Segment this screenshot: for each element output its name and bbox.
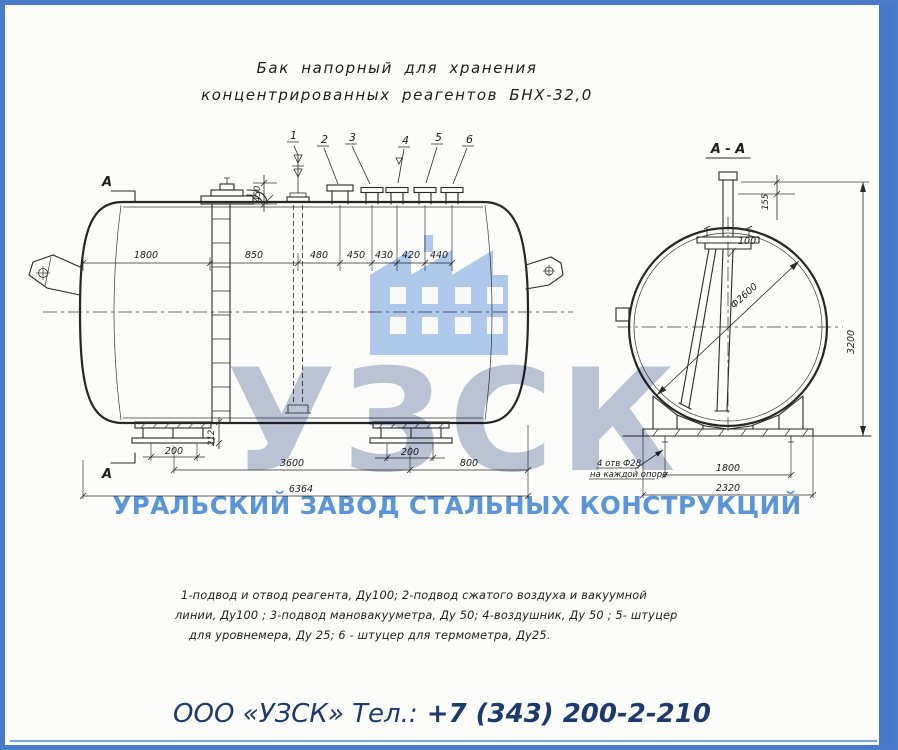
dim-450: 450	[347, 250, 365, 261]
lifting-lug-right	[526, 257, 563, 289]
callout-5: 5	[435, 131, 442, 144]
dim-span: 3600	[280, 458, 304, 469]
shell-circle	[616, 217, 843, 435]
note-line-3: для уровнемера, Ду 25; 6 - штуцер для те…	[175, 626, 750, 646]
dim-sec-height: 3200	[846, 330, 857, 354]
internal-pipes: 100	[679, 236, 756, 411]
holes-note-line2: на каждой опоре	[590, 470, 667, 480]
footer: ООО «УЗСК» Тел.:+7 (343) 200-2-210	[5, 699, 879, 729]
dim-sec-top: 155	[761, 194, 771, 210]
callout-3: 3	[349, 131, 356, 144]
legend-notes: 1-подвод и отвод реагента, Ду100; 2-подв…	[175, 586, 750, 646]
dim-sec-base: 2320	[716, 483, 740, 494]
dim-480: 480	[310, 250, 328, 261]
dim-420: 420	[402, 250, 420, 261]
dim-diameter: Ф2600	[729, 281, 760, 311]
dim-430: 430	[375, 250, 393, 261]
cut-mark-bottom: А	[101, 467, 112, 482]
saddle-support-right	[370, 422, 452, 443]
section-view: А - А Ф2600	[589, 142, 871, 498]
dim-sec-holes: 1800	[716, 463, 740, 474]
dim-stub-height: 450	[253, 186, 263, 202]
side-fitting	[616, 308, 629, 321]
cut-mark-top: А	[101, 175, 112, 190]
callout-1: 1	[290, 129, 297, 142]
footer-phone: +7 (343) 200-2-210	[427, 699, 711, 729]
tank-body	[43, 202, 573, 423]
ladder	[212, 204, 230, 422]
footer-divider	[10, 740, 877, 742]
dim-1800: 1800	[134, 250, 158, 261]
saddle-support-left	[132, 422, 214, 443]
main-view: 1 2 3 4 5 6	[29, 129, 573, 499]
dim-right-end: 800	[460, 458, 478, 469]
section-label: А - А	[710, 142, 746, 157]
lifting-lug-left	[29, 255, 80, 295]
callout-4: 4	[402, 134, 409, 147]
callout-2: 2	[321, 133, 328, 146]
dim-850: 850	[245, 250, 263, 261]
note-line-1: 1-подвод и отвод реагента, Ду100; 2-подв…	[175, 586, 750, 606]
holes-note-line1: 4 отв Ф28	[597, 459, 642, 469]
section-cut-marks: А А	[101, 175, 135, 482]
dim-overall-length: 6364	[289, 484, 313, 495]
right-border-stripe	[879, 5, 893, 745]
anchor-holes	[662, 436, 794, 442]
note-line-2: линии, Ду100 ; 3-подвод мановакууметра, …	[175, 606, 750, 626]
dim-support-height: 212	[207, 430, 217, 446]
callouts: 1 2 3 4 5 6	[287, 129, 474, 193]
dim-440: 440	[430, 250, 448, 261]
dim-pipe-100: 100	[738, 236, 756, 247]
callout-6: 6	[466, 133, 473, 146]
footer-company: ООО «УЗСК» Тел.:	[173, 699, 418, 729]
dimensions-main: 1800 850 480 450 430 420 440 450 212 200	[80, 175, 531, 499]
scanned-drawing-page: Бак напорный для хранения концентрирован…	[0, 0, 898, 750]
inlet-pipe	[285, 193, 311, 413]
